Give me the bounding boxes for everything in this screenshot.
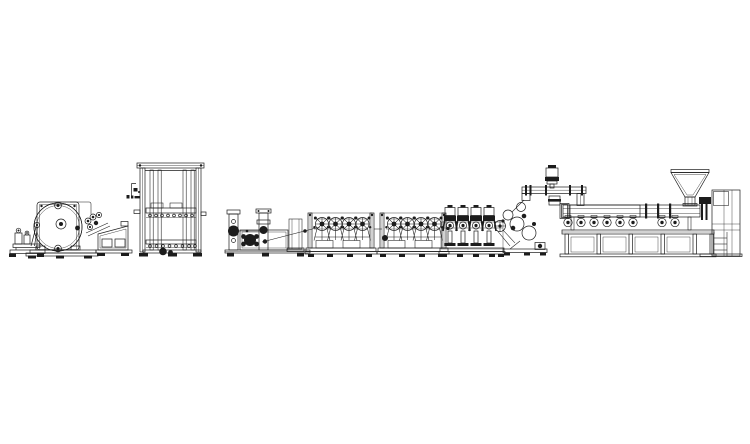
drawing-canvas [0,0,750,444]
roller-bank-1 [305,213,377,257]
screen-changer [522,165,586,206]
cooling-frame [134,163,206,257]
sensor-bracket-icon [127,184,141,199]
calender-stack [501,200,547,256]
winder [26,202,98,259]
extrusion-line-drawing [0,0,750,444]
pull-roll-unit [85,212,132,256]
